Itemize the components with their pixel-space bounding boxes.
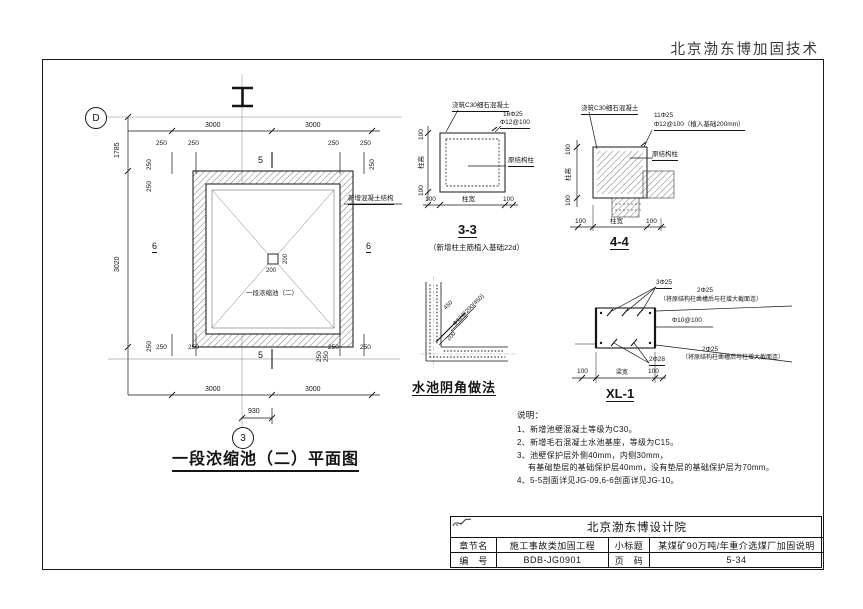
dim-label: 250 <box>360 345 371 352</box>
dim-label: 100 <box>577 369 588 376</box>
concrete-note: 浇筑C30细石混凝土 <box>452 103 509 112</box>
section-3-3-subtitle: （新增柱主筋植入基础22d） <box>429 244 524 252</box>
corner-detail-linework <box>420 276 516 368</box>
subtitle-label-cell: 小标题 <box>608 537 649 552</box>
grid-bubble-d: D <box>85 107 107 129</box>
dim-label: 250 <box>147 181 154 192</box>
rebar-label: Φ12@100（植入基础200mm） <box>654 122 745 131</box>
original-column-label: 原结构柱 <box>652 152 678 161</box>
dim-label: 100 <box>566 195 573 206</box>
plan-linework <box>105 74 402 427</box>
rebar-label: 11Φ25 <box>654 113 673 120</box>
dim-label: 柱高 <box>566 168 573 181</box>
number-label-cell: 编 号 <box>451 552 496 567</box>
rebar-label: 2Φ25 <box>697 288 713 295</box>
page-value-cell: 5-34 <box>649 552 823 567</box>
chapter-label-cell: 章节名 <box>451 537 496 552</box>
number-value-cell: BDB-JG0901 <box>496 552 608 567</box>
rebar-note: （将原结构柱凿槽后与柱增大截面连） <box>660 297 762 303</box>
stirrup-label: Φ10@100 <box>672 318 702 325</box>
dim-label: 250 <box>188 345 199 352</box>
dim-label: 250 <box>324 351 331 362</box>
section-4-4-title: 4-4 <box>610 235 629 250</box>
dim-label: 250 <box>188 141 199 148</box>
dim-label: 250 <box>156 141 167 148</box>
page-label-cell: 页 码 <box>608 552 649 567</box>
dim-label: 柱高 <box>419 156 426 169</box>
dim-label: 100 <box>648 369 659 376</box>
note-item: 4、5-5剖面详见JG-09,6-6剖面详见JG-10。 <box>517 475 679 486</box>
xl1-title: XL-1 <box>606 387 634 402</box>
dim-label: 100 <box>419 185 426 196</box>
notes-heading: 说明： <box>517 409 543 421</box>
dim-label: 100 <box>419 129 426 140</box>
dim-label: 100 <box>646 219 657 226</box>
note-item: 1、新增池壁混凝土等级为C30。 <box>517 424 637 435</box>
design-institute-logo-icon <box>451 517 473 529</box>
rebar-label: Φ12@100 <box>500 120 530 129</box>
dim-label: 柱宽 <box>462 197 475 204</box>
dim-label: 1785 <box>114 142 121 158</box>
note-item: 3、池壁保护层外侧40mm，内侧30mm， <box>517 450 668 461</box>
dim-label: 柱宽 <box>610 219 623 226</box>
dim-label: 100 <box>503 197 514 204</box>
dim-label: 3000 <box>205 386 221 393</box>
dim-label: 250 <box>370 159 377 170</box>
grid-bubble-3: 3 <box>232 427 254 449</box>
rebar-label: 2Φ28 <box>649 357 665 366</box>
title-block: 北京渤东博设计院 章节名 施工事故类加固工程 小标题 某煤矿90万吨/年重介选煤… <box>450 516 822 568</box>
new-concrete-note: 新增混凝土结构 <box>348 196 394 205</box>
note-item: 2、新增毛石混凝土水池基座，等级为C15。 <box>517 437 678 448</box>
rebar-label: 3Φ25 <box>656 280 672 289</box>
section-3-3-title: 3-3 <box>458 223 477 238</box>
dim-label: 200 <box>283 254 289 264</box>
plan-title: 一段浓缩池（二）平面图 <box>172 452 359 472</box>
dim-label: 3020 <box>114 256 121 272</box>
concrete-note: 浇筑C30细石混凝土 <box>581 106 638 115</box>
drawing-sheet: 北京渤东博加固技术 <box>0 0 863 609</box>
title-block-header: 北京渤东博设计院 <box>451 517 823 537</box>
section-mark-6: 6 <box>366 242 371 253</box>
dim-label: 250 <box>156 345 167 352</box>
section-mark-5: 5 <box>258 156 263 165</box>
dim-label: 梁宽 <box>616 370 628 376</box>
design-institute-name: 北京渤东博设计院 <box>587 519 687 535</box>
rebar-note: （将原结构柱凿槽后与柱增大截面连） <box>682 355 784 361</box>
dim-label: 250 <box>147 341 154 352</box>
section-mark-5: 5 <box>258 351 263 360</box>
grid-label-d: D <box>92 113 99 124</box>
dim-label: 3000 <box>305 386 321 393</box>
subtitle-value-cell: 某煤矿90万吨/年重介选煤厂加固说明 <box>649 537 823 552</box>
note-item: 有基础垫层的基础保护层40mm，没有垫层的基础保护层为70mm。 <box>528 462 774 473</box>
section-mark-6: 6 <box>152 242 157 253</box>
steel-column-symbol <box>232 88 253 106</box>
rebar-label: 16Φ25 <box>503 112 523 119</box>
grid-label-3: 3 <box>240 433 246 444</box>
dim-label: 250 <box>360 141 371 148</box>
dim-label: 3000 <box>205 122 221 129</box>
dim-label: 100 <box>425 197 436 204</box>
dim-label: 100 <box>566 144 573 155</box>
dim-label: 100 <box>575 219 586 226</box>
dim-label: 250 <box>328 141 339 148</box>
rebar-label: 2Φ25 <box>702 347 718 354</box>
original-column-label: 原结构柱 <box>508 158 534 167</box>
dim-label: 930 <box>248 408 260 415</box>
dim-label: 200 <box>266 268 276 274</box>
chapter-value-cell: 施工事故类加固工程 <box>496 537 608 552</box>
dim-label: 250 <box>147 159 154 170</box>
corner-detail-title: 水池阴角做法 <box>412 381 496 396</box>
pool-label: 一段浓缩池（二） <box>246 291 298 298</box>
dim-label: 3000 <box>305 122 321 129</box>
